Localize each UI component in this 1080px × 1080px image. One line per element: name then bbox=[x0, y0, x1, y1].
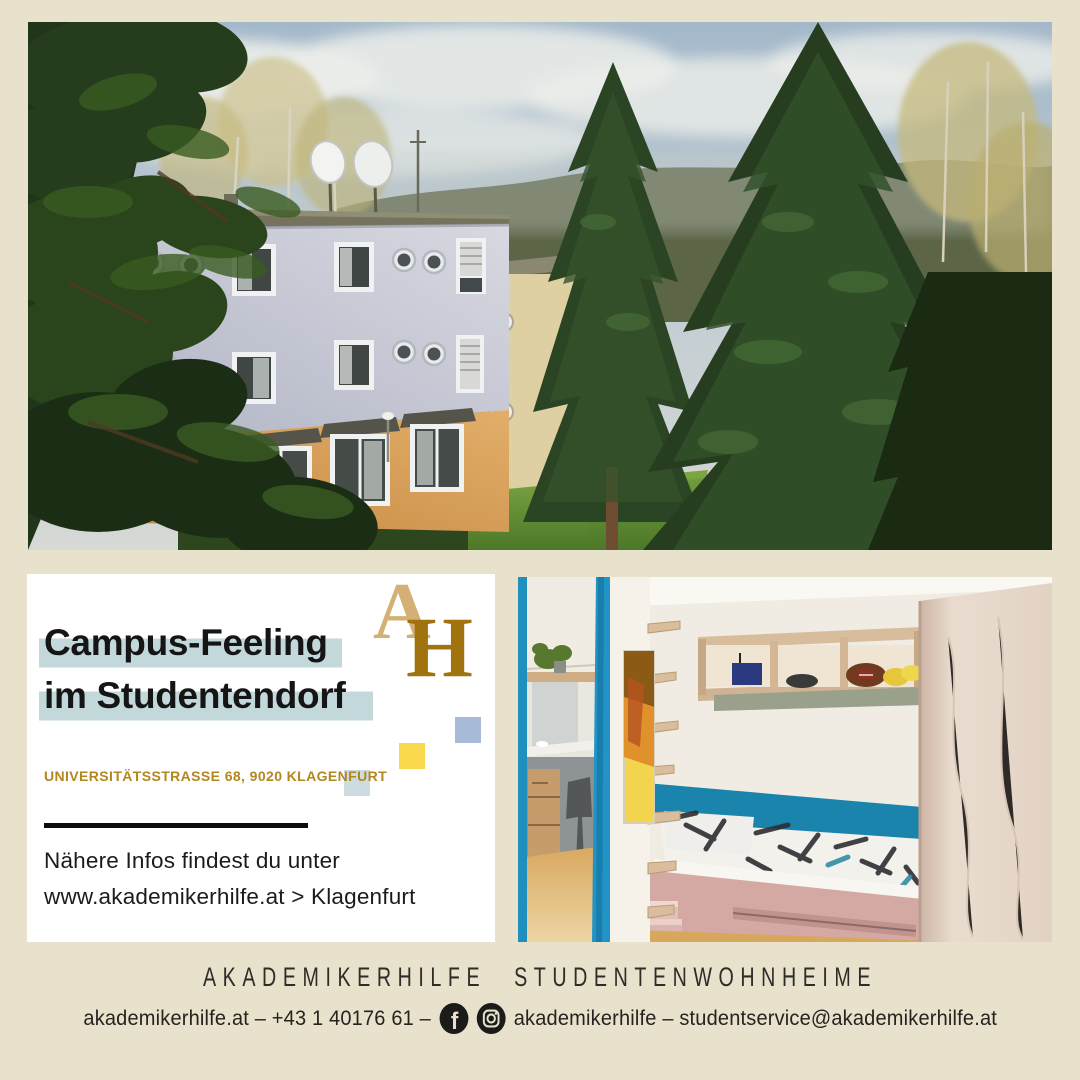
deco-square-yellow bbox=[399, 743, 425, 769]
headline-line1: Campus-Feeling bbox=[39, 616, 342, 669]
instagram-icon[interactable] bbox=[476, 1003, 505, 1034]
facebook-f-glyph: f bbox=[451, 1008, 459, 1035]
info-line1: Nähere Infos findest du unter bbox=[44, 848, 340, 873]
campus-exterior-illustration bbox=[28, 22, 1052, 550]
brand-word-studentenwohnheime: STUDENTENWOHNHEIME bbox=[514, 962, 877, 992]
facebook-icon[interactable]: f bbox=[439, 1003, 468, 1034]
address-line: UNIVERSITÄTSSTRASSE 68, 9020 KLAGENFURT bbox=[44, 768, 387, 784]
logo-letter-h: H bbox=[406, 604, 473, 690]
info-text: Nähere Infos findest du unter www.akadem… bbox=[44, 843, 416, 915]
headline: Campus-Feeling im Studentendorf bbox=[44, 616, 373, 722]
brand-word-akademikerhilfe: AKADEMIKERHILFE bbox=[203, 962, 486, 992]
campus-exterior-photo bbox=[28, 22, 1052, 550]
ah-logo: A H bbox=[373, 578, 485, 700]
contact-left-text: akademikerhilfe.at – +43 1 40176 61 – bbox=[83, 1006, 431, 1031]
instagram-glyph bbox=[482, 1009, 500, 1028]
divider-rule bbox=[44, 823, 308, 828]
flyer-canvas: Campus-Feeling im Studentendorf A H UNIV… bbox=[0, 0, 1080, 1080]
brand-line: AKADEMIKERHILFESTUDENTENWOHNHEIME bbox=[0, 964, 1080, 992]
contact-line: akademikerhilfe.at – +43 1 40176 61 – f … bbox=[0, 1003, 1080, 1034]
deco-square-blue bbox=[455, 717, 481, 743]
info-card: Campus-Feeling im Studentendorf A H UNIV… bbox=[27, 574, 495, 942]
dorm-room-illustration bbox=[518, 577, 1052, 942]
dorm-room-photo bbox=[518, 577, 1052, 942]
info-line2: www.akademikerhilfe.at > Klagenfurt bbox=[44, 884, 416, 909]
headline-line2: im Studentendorf bbox=[39, 669, 373, 722]
contact-right-text: akademikerhilfe – studentservice@akademi… bbox=[514, 1006, 997, 1031]
